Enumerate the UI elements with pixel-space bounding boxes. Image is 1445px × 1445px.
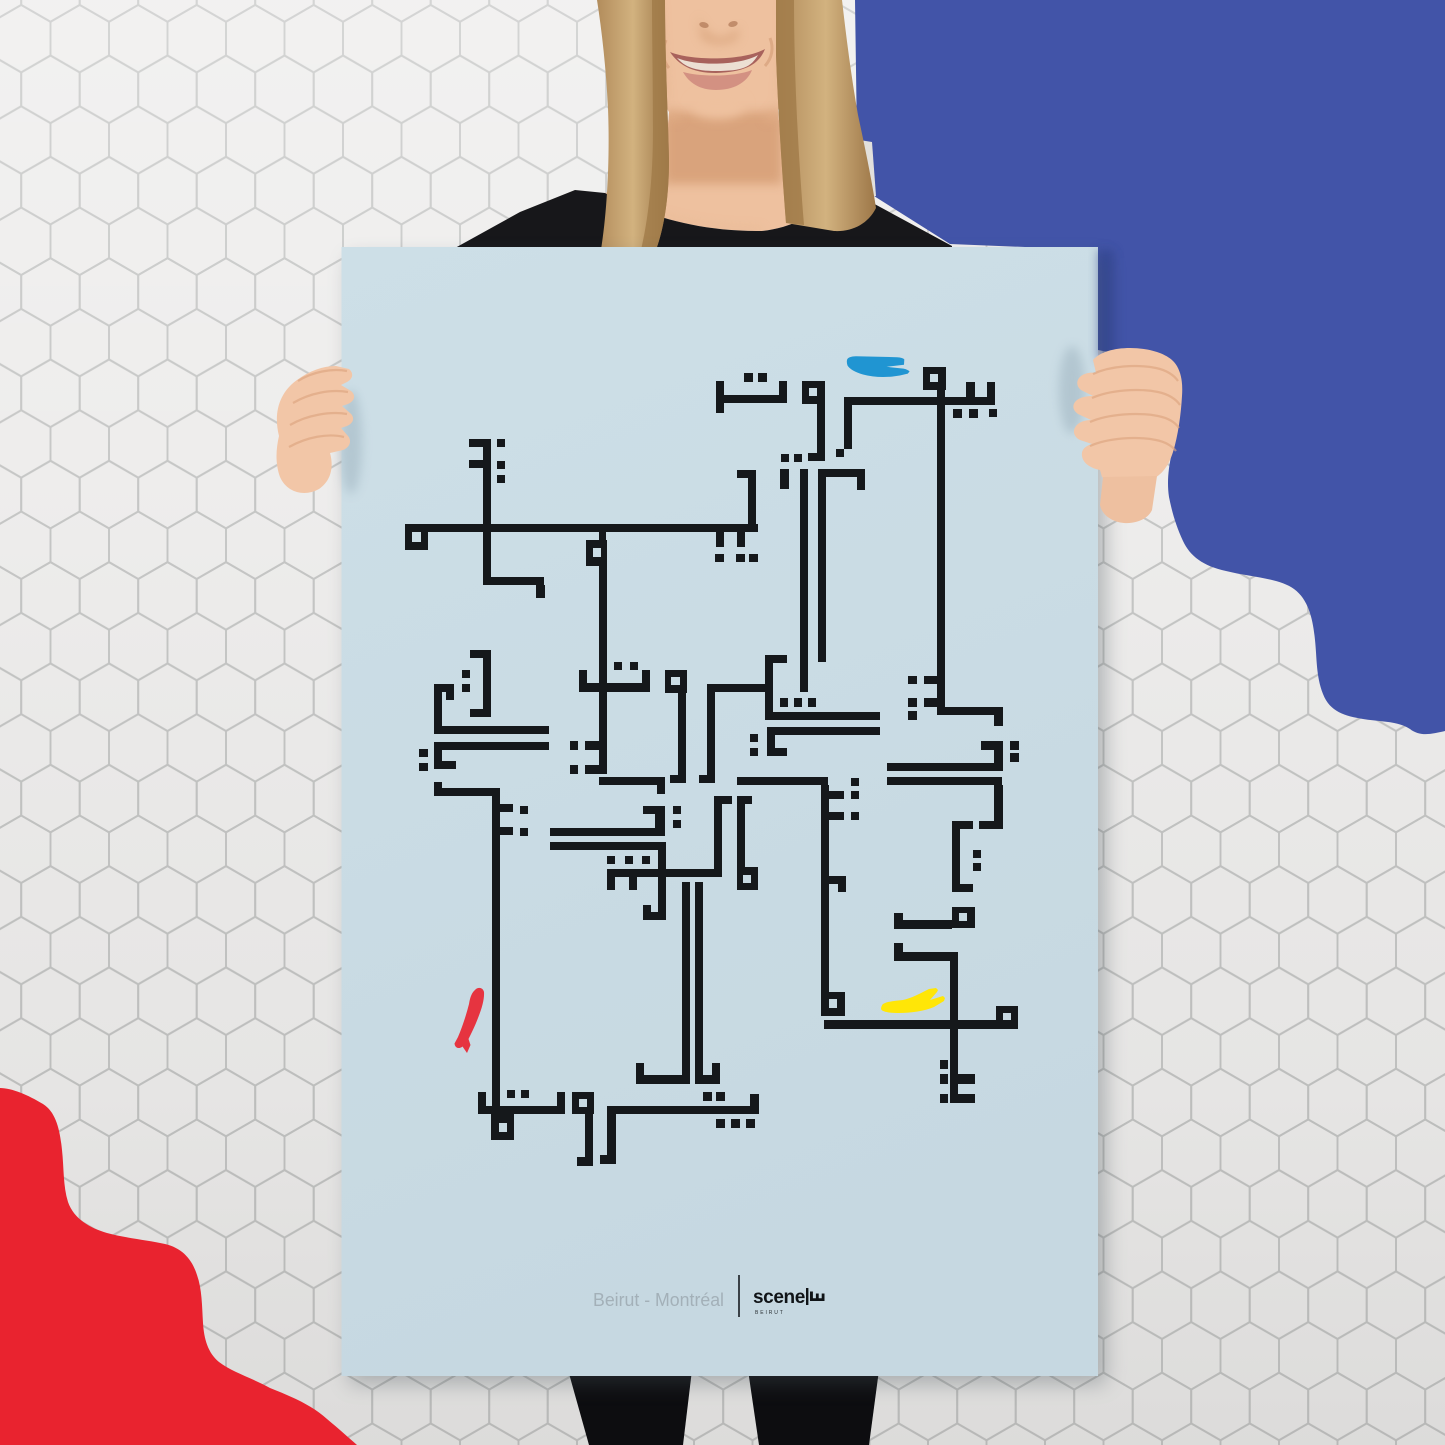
svg-text:scene: scene bbox=[753, 1287, 805, 1308]
svg-text:BEIRUT: BEIRUT bbox=[755, 1310, 785, 1316]
svg-text:Beirut - Montréal: Beirut - Montréal bbox=[593, 1289, 724, 1310]
